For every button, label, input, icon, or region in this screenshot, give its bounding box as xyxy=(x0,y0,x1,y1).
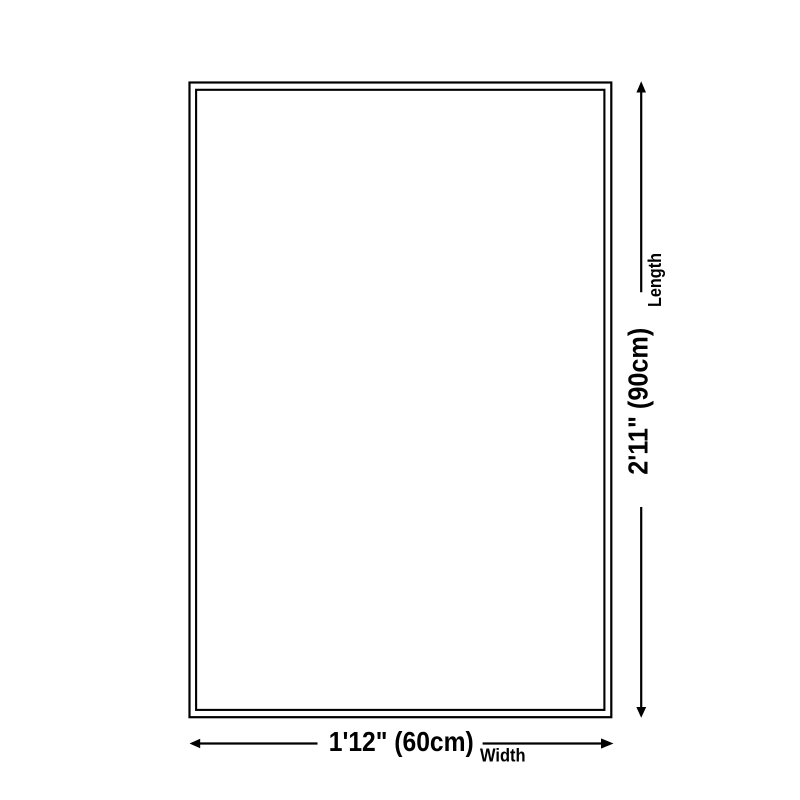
svg-text:2'11" (90cm): 2'11" (90cm) xyxy=(623,328,654,475)
svg-text:Length: Length xyxy=(644,253,665,307)
svg-text:Width: Width xyxy=(480,745,526,766)
svg-text:1'12" (60cm): 1'12" (60cm) xyxy=(329,726,474,757)
